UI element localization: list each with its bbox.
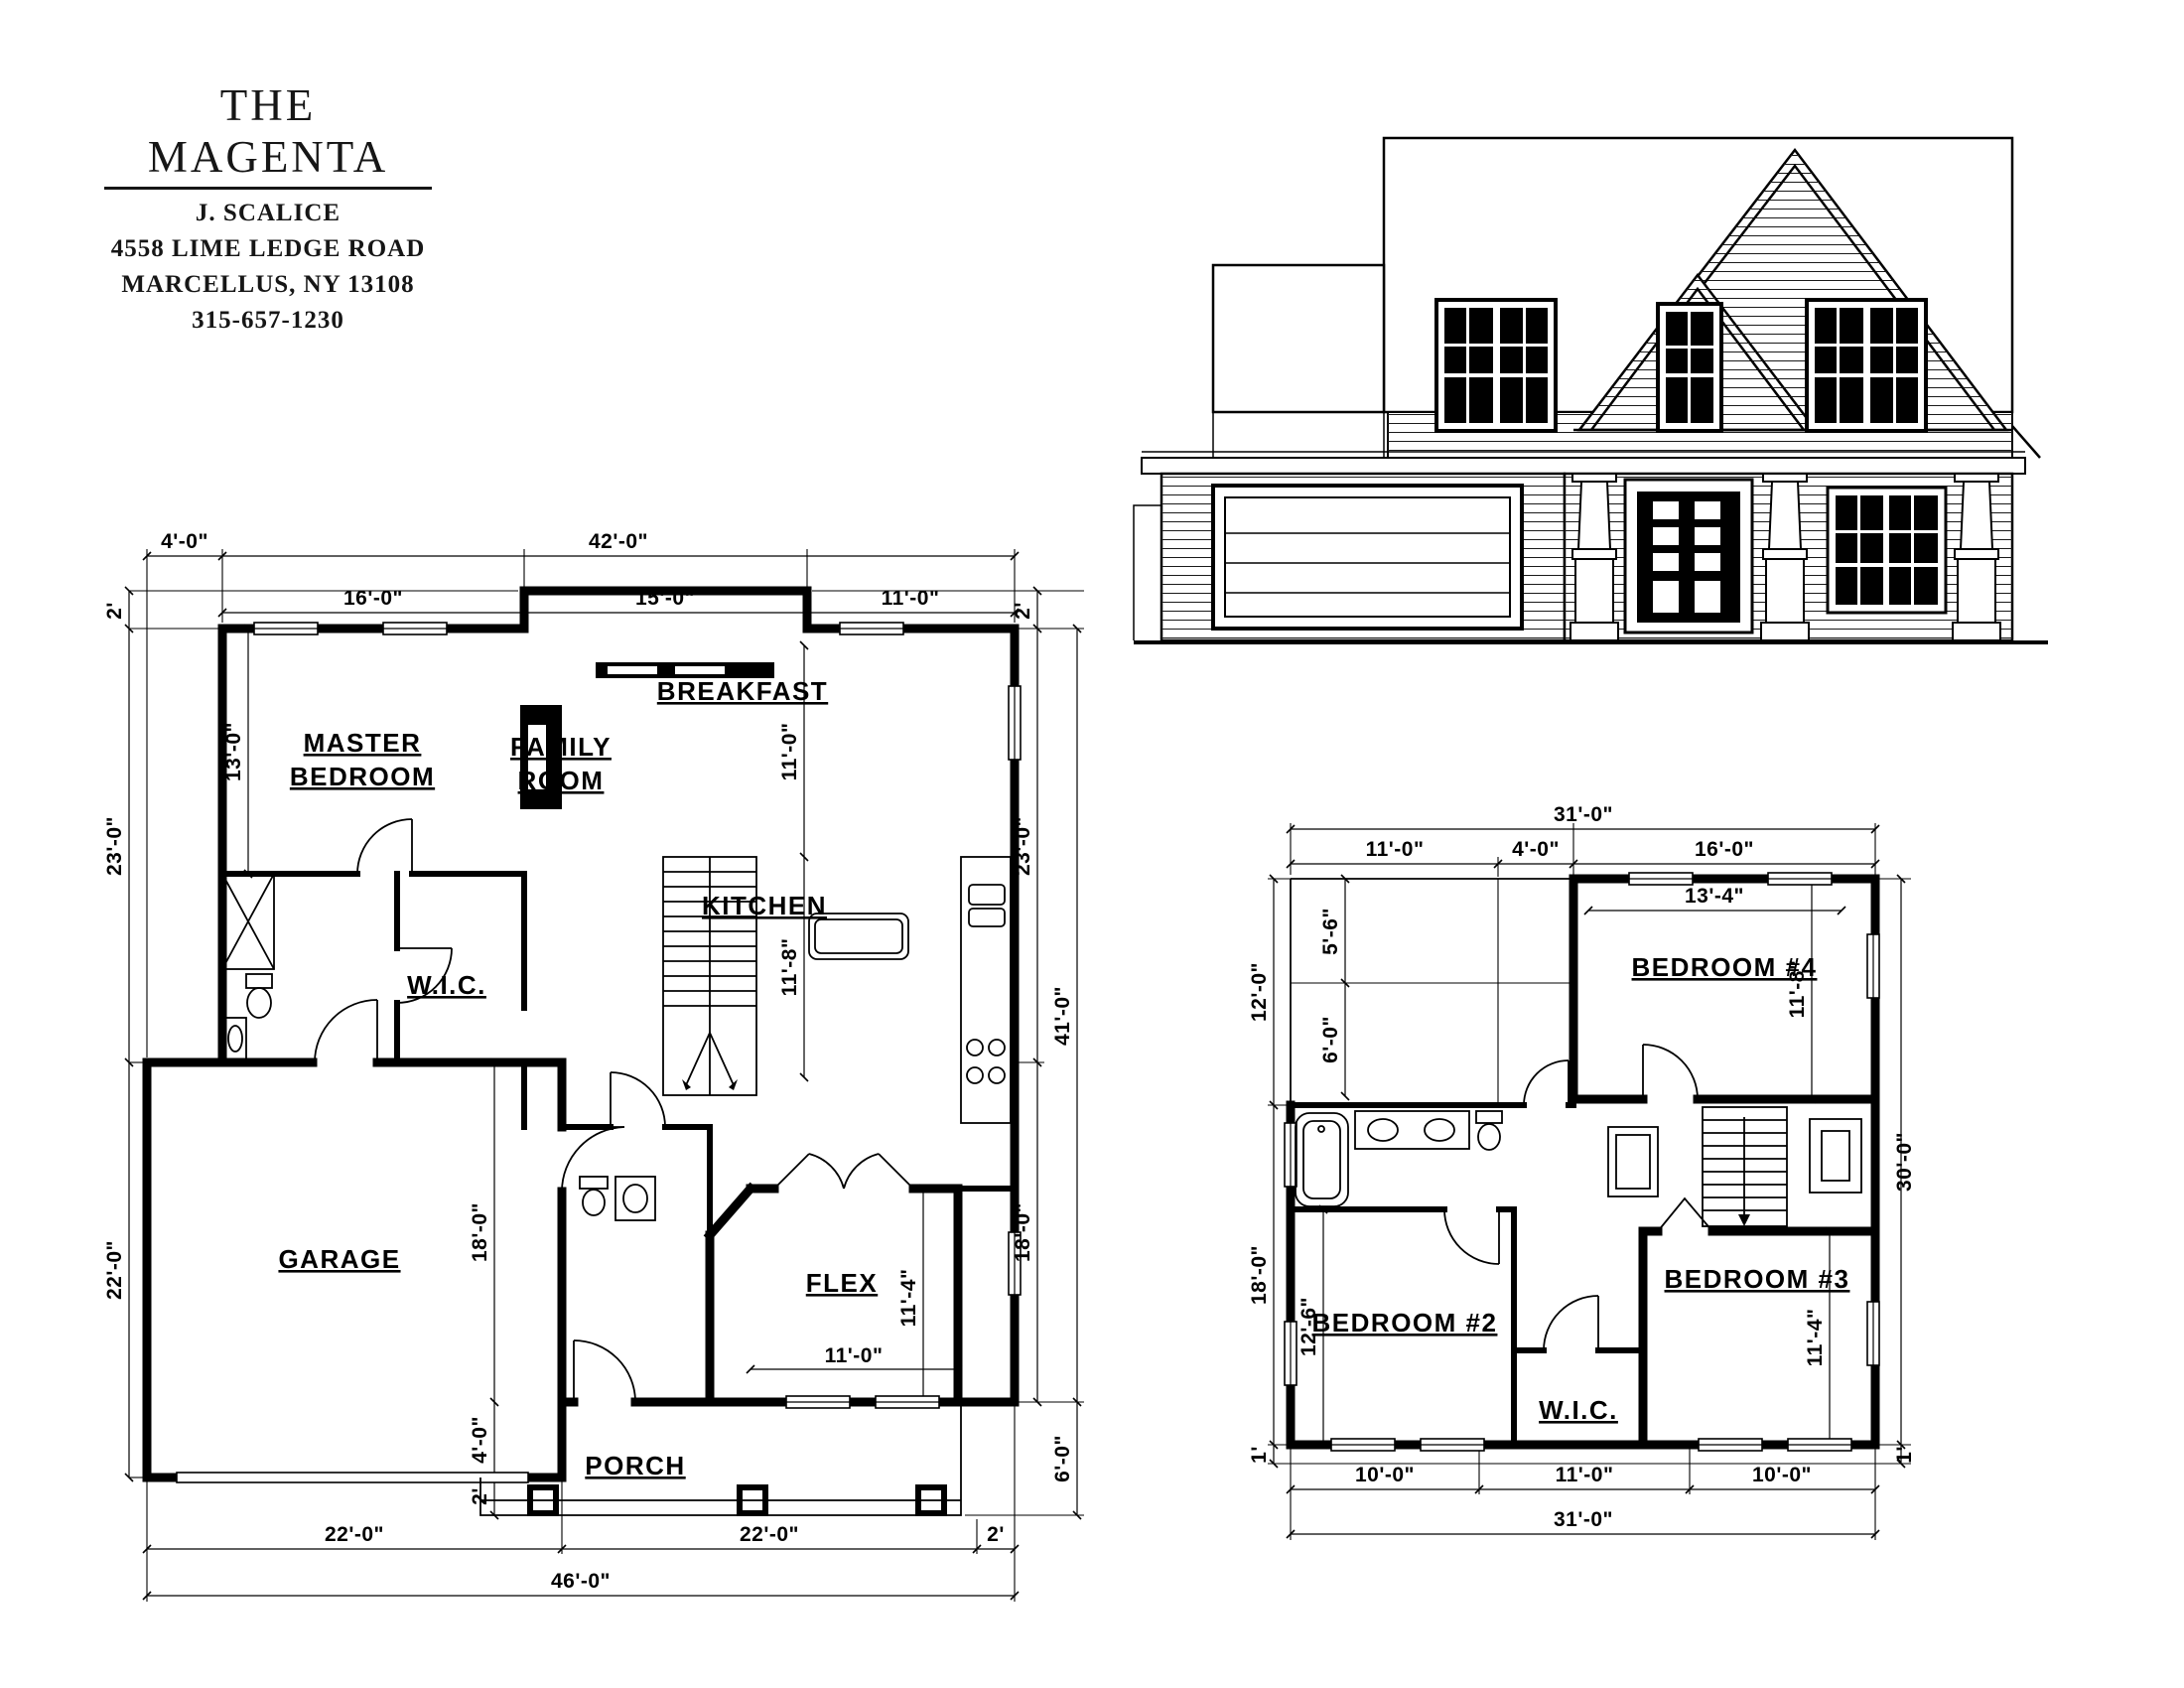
garage-door-opening — [177, 1473, 528, 1482]
second-floor-plan: BEDROOM #4 BEDROOM #3 BEDROOM #2 W.I.C. … — [1216, 770, 1956, 1604]
dim-bottom-garage: 22'-0" — [325, 1523, 384, 1546]
room-label-porch: PORCH — [585, 1451, 685, 1480]
window — [1285, 1322, 1297, 1385]
upper-center-window — [1658, 304, 1721, 431]
ff-interior-walls — [222, 874, 710, 1235]
porch-outline — [480, 1402, 961, 1515]
toilet — [246, 974, 272, 1018]
second-floor-windows — [1436, 300, 1926, 431]
address-line: 4558 LIME LEDGE ROAD — [94, 235, 442, 263]
toilet — [1476, 1111, 1502, 1150]
left-roof-step — [1213, 265, 1384, 412]
dim-kitchen-depth: 11'-8" — [778, 938, 801, 997]
dim-bottom-main: 22'-0" — [740, 1523, 799, 1546]
dim-top-left: 11'-0" — [1366, 838, 1425, 861]
bath-toilet — [580, 1177, 655, 1220]
stairs — [1703, 1107, 1787, 1226]
room-label-bedroom3: BEDROOM #3 — [1665, 1264, 1850, 1294]
room-label-wic: W.I.C. — [1539, 1395, 1618, 1425]
room-label-wic: W.I.C. — [407, 970, 486, 1000]
room-label-flex: FLEX — [806, 1268, 878, 1298]
front-elevation-drawing — [1122, 84, 2060, 660]
dim-bed3-depth: 11'-4" — [1804, 1309, 1827, 1367]
dim-right-overall: 41'-0" — [1051, 986, 1074, 1046]
dim-left-garage: 22'-0" — [103, 1240, 126, 1300]
dim-top-master: 16'-0" — [343, 587, 403, 610]
right-roof-edge — [2012, 426, 2040, 458]
window — [1009, 686, 1021, 760]
dim-bed4-depth: 11'-8" — [1786, 960, 1809, 1019]
upper-left-window — [1436, 300, 1556, 431]
dim-top-right: 16'-0" — [1695, 838, 1754, 861]
ff-walls — [147, 591, 1015, 1482]
room-label-bedroom2: BEDROOM #2 — [1312, 1308, 1498, 1337]
dim-porch-offset: 2' — [469, 1487, 491, 1505]
dim-right-offset: 2' — [1012, 602, 1034, 620]
room-label-master-1: MASTER — [304, 728, 422, 758]
window — [1768, 873, 1832, 885]
sf-doors — [1444, 1045, 1712, 1350]
phone-line: 315-657-1230 — [94, 307, 442, 335]
linen-closet — [222, 874, 274, 969]
city-line: MARCELLUS, NY 13108 — [94, 271, 442, 299]
title-block: THE MAGENTA J. SCALICE 4558 LIME LEDGE R… — [94, 79, 442, 343]
window — [876, 1396, 939, 1408]
window — [1699, 1439, 1762, 1451]
left-wall-step — [1134, 505, 1161, 640]
dim-hall-depth: 18'-0" — [469, 1202, 491, 1262]
lower-right-window — [1828, 488, 1946, 613]
front-door — [1625, 480, 1752, 633]
dim-bottom-right: 10'-0" — [1752, 1464, 1812, 1486]
window — [383, 623, 447, 634]
dim-bottom-overall: 46'-0" — [551, 1570, 611, 1593]
dim-left-offset: 2' — [103, 602, 126, 620]
room-label-breakfast: BREAKFAST — [657, 676, 828, 706]
dim-top-offset: 4'-0" — [161, 530, 208, 553]
bathtub — [1296, 1113, 1348, 1206]
window — [254, 623, 318, 634]
kitchen-counter — [961, 857, 1011, 1123]
dim-top-overall: 42'-0" — [589, 530, 648, 553]
dim-bottom-left: 10'-0" — [1355, 1464, 1415, 1486]
dim-right-lower: 18'-0" — [1012, 1202, 1034, 1262]
dim-left-inner-top: 5'-6" — [1319, 908, 1342, 955]
dim-top-family: 15'-0" — [635, 587, 695, 610]
floor-band — [1142, 458, 2025, 474]
dim-bed4-width: 13'-4" — [1685, 885, 1744, 908]
dim-porch-depth: 6'-0" — [1051, 1435, 1074, 1482]
window — [1867, 934, 1879, 998]
client-name: J. SCALICE — [94, 200, 442, 227]
upper-right-window — [1807, 300, 1926, 431]
dim-bottom-overall: 31'-0" — [1554, 1508, 1613, 1531]
room-label-master-2: BEDROOM — [290, 762, 435, 791]
title-rule — [104, 187, 432, 190]
dim-bottom-offset: 2' — [987, 1523, 1005, 1546]
room-label-kitchen: KITCHEN — [702, 891, 827, 920]
first-floor-elevation — [1134, 426, 2048, 642]
dim-flex-width: 11'-0" — [825, 1344, 884, 1367]
dim-top-overall: 31'-0" — [1554, 803, 1613, 826]
dim-left-upper: 12'-0" — [1248, 962, 1271, 1022]
dim-right-overall: 30'-0" — [1893, 1132, 1916, 1192]
window — [1421, 1439, 1484, 1451]
dim-left-lower: 18'-0" — [1248, 1245, 1271, 1305]
first-floor-plan: MASTER BEDROOM FAMILY ROOM BREAKFAST KIT… — [60, 492, 1122, 1618]
linen-closet — [1608, 1127, 1658, 1196]
double-vanity — [1355, 1111, 1469, 1149]
vanity — [224, 1018, 246, 1059]
stair-landing — [1810, 1119, 1861, 1193]
sf-dimension-lines — [1274, 829, 1901, 1534]
dim-master-depth: 13'-0" — [222, 722, 245, 781]
ff-fixtures — [222, 705, 1011, 1515]
plan-title: THE MAGENTA — [94, 79, 442, 183]
ff-dimension-lines — [129, 556, 1077, 1596]
room-label-garage: GARAGE — [278, 1244, 400, 1274]
dim-left-roof-offset: 1' — [1248, 1446, 1271, 1464]
room-label-family-1: FAMILY — [510, 732, 612, 762]
dim-bed2-depth: 12'-6" — [1297, 1297, 1320, 1356]
window — [1867, 1302, 1879, 1365]
dim-flex-depth: 11'-4" — [897, 1269, 920, 1328]
dim-left-inner-mid: 6'-0" — [1319, 1016, 1342, 1063]
garage-door — [1213, 486, 1522, 629]
window — [1788, 1439, 1851, 1451]
dim-garage-offset: 4'-0" — [469, 1416, 491, 1464]
dim-left-upper: 23'-0" — [103, 816, 126, 876]
window — [786, 1396, 850, 1408]
window — [1331, 1439, 1395, 1451]
sf-extension-lines — [1268, 823, 1911, 1540]
dim-right-roof-offset: 1' — [1893, 1446, 1916, 1464]
ff-extension-lines — [129, 549, 1084, 1602]
room-label-family-2: ROOM — [518, 766, 605, 795]
dim-top-breakfast: 11'-0" — [882, 587, 940, 610]
window — [840, 623, 903, 634]
dim-bottom-mid: 11'-0" — [1556, 1464, 1614, 1486]
dim-top-mid: 4'-0" — [1512, 838, 1560, 861]
dim-right-upper: 23'-0" — [1012, 816, 1034, 876]
architectural-sheet: THE MAGENTA J. SCALICE 4558 LIME LEDGE R… — [0, 0, 2184, 1688]
dim-breakfast-depth: 11'-0" — [778, 723, 801, 781]
window — [1629, 873, 1693, 885]
